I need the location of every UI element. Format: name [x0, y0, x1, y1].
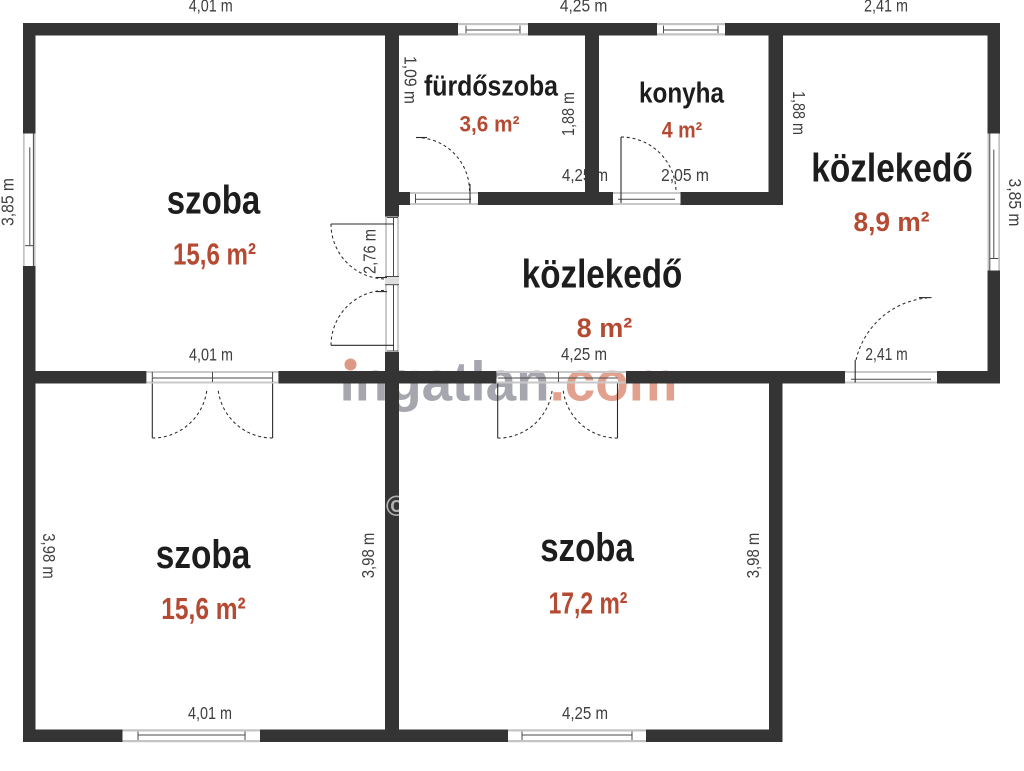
svg-text:4,01 m: 4,01 m: [189, 0, 233, 16]
svg-text:4 m²: 4 m²: [662, 117, 703, 142]
svg-text:17,2 m²: 17,2 m²: [549, 586, 628, 621]
svg-text:1,88 m: 1,88 m: [558, 92, 578, 136]
svg-text:15,6 m²: 15,6 m²: [173, 237, 256, 272]
svg-text:3,85 m: 3,85 m: [0, 178, 18, 226]
svg-text:szoba: szoba: [540, 526, 634, 570]
svg-text:3,98 m: 3,98 m: [358, 533, 378, 579]
svg-text:3,85 m: 3,85 m: [1005, 179, 1024, 227]
svg-text:2,76 m: 2,76 m: [360, 229, 380, 274]
svg-text:2,41 m: 2,41 m: [865, 344, 908, 364]
svg-text:©: ©: [386, 491, 407, 523]
svg-text:1,09 m: 1,09 m: [401, 56, 421, 104]
svg-text:4,25 m: 4,25 m: [562, 703, 608, 723]
svg-text:8 m²: 8 m²: [577, 313, 633, 343]
svg-text:közlekedő: közlekedő: [811, 147, 973, 191]
svg-text:konyha: konyha: [639, 78, 725, 110]
svg-text:1,88 m: 1,88 m: [789, 91, 809, 135]
svg-text:4,25 m: 4,25 m: [560, 0, 608, 16]
svg-text:2,05 m: 2,05 m: [661, 165, 709, 185]
svg-text:4,25 m: 4,25 m: [561, 344, 607, 364]
svg-text:szoba: szoba: [167, 179, 261, 223]
svg-text:4,01 m: 4,01 m: [188, 703, 232, 723]
svg-text:közlekedő: közlekedő: [522, 253, 683, 297]
svg-text:15,6 m²: 15,6 m²: [161, 591, 245, 626]
svg-text:fürdőszoba: fürdőszoba: [424, 71, 559, 103]
svg-text:3,98 m: 3,98 m: [743, 533, 763, 579]
svg-text:4,01 m: 4,01 m: [189, 345, 233, 365]
svg-text:3,6 m²: 3,6 m²: [460, 111, 520, 136]
svg-text:3,98 m: 3,98 m: [39, 533, 59, 579]
svg-text:8,9 m²: 8,9 m²: [854, 207, 930, 237]
svg-text:2,41 m: 2,41 m: [864, 0, 908, 16]
svg-text:szoba: szoba: [156, 533, 251, 577]
